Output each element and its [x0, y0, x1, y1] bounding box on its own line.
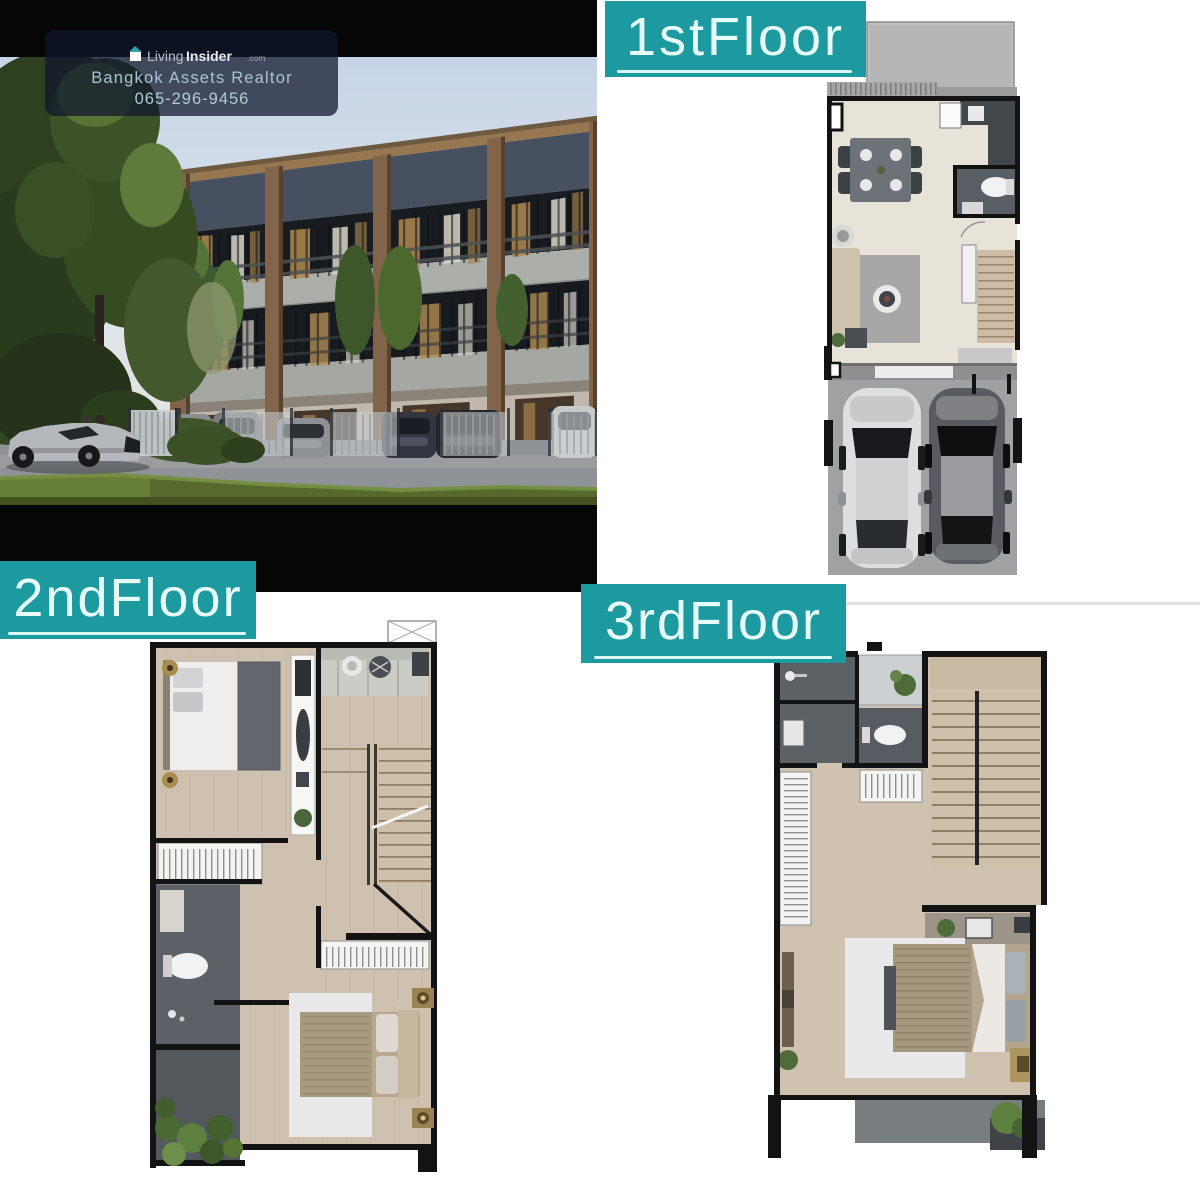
svg-text:.com: .com	[247, 53, 265, 63]
svg-text:Insider: Insider	[186, 48, 232, 64]
svg-text:Bangkok Assets Realtor: Bangkok Assets Realtor	[91, 69, 293, 87]
svg-text:Living: Living	[147, 48, 184, 64]
svg-text:065-296-9456: 065-296-9456	[135, 90, 250, 108]
